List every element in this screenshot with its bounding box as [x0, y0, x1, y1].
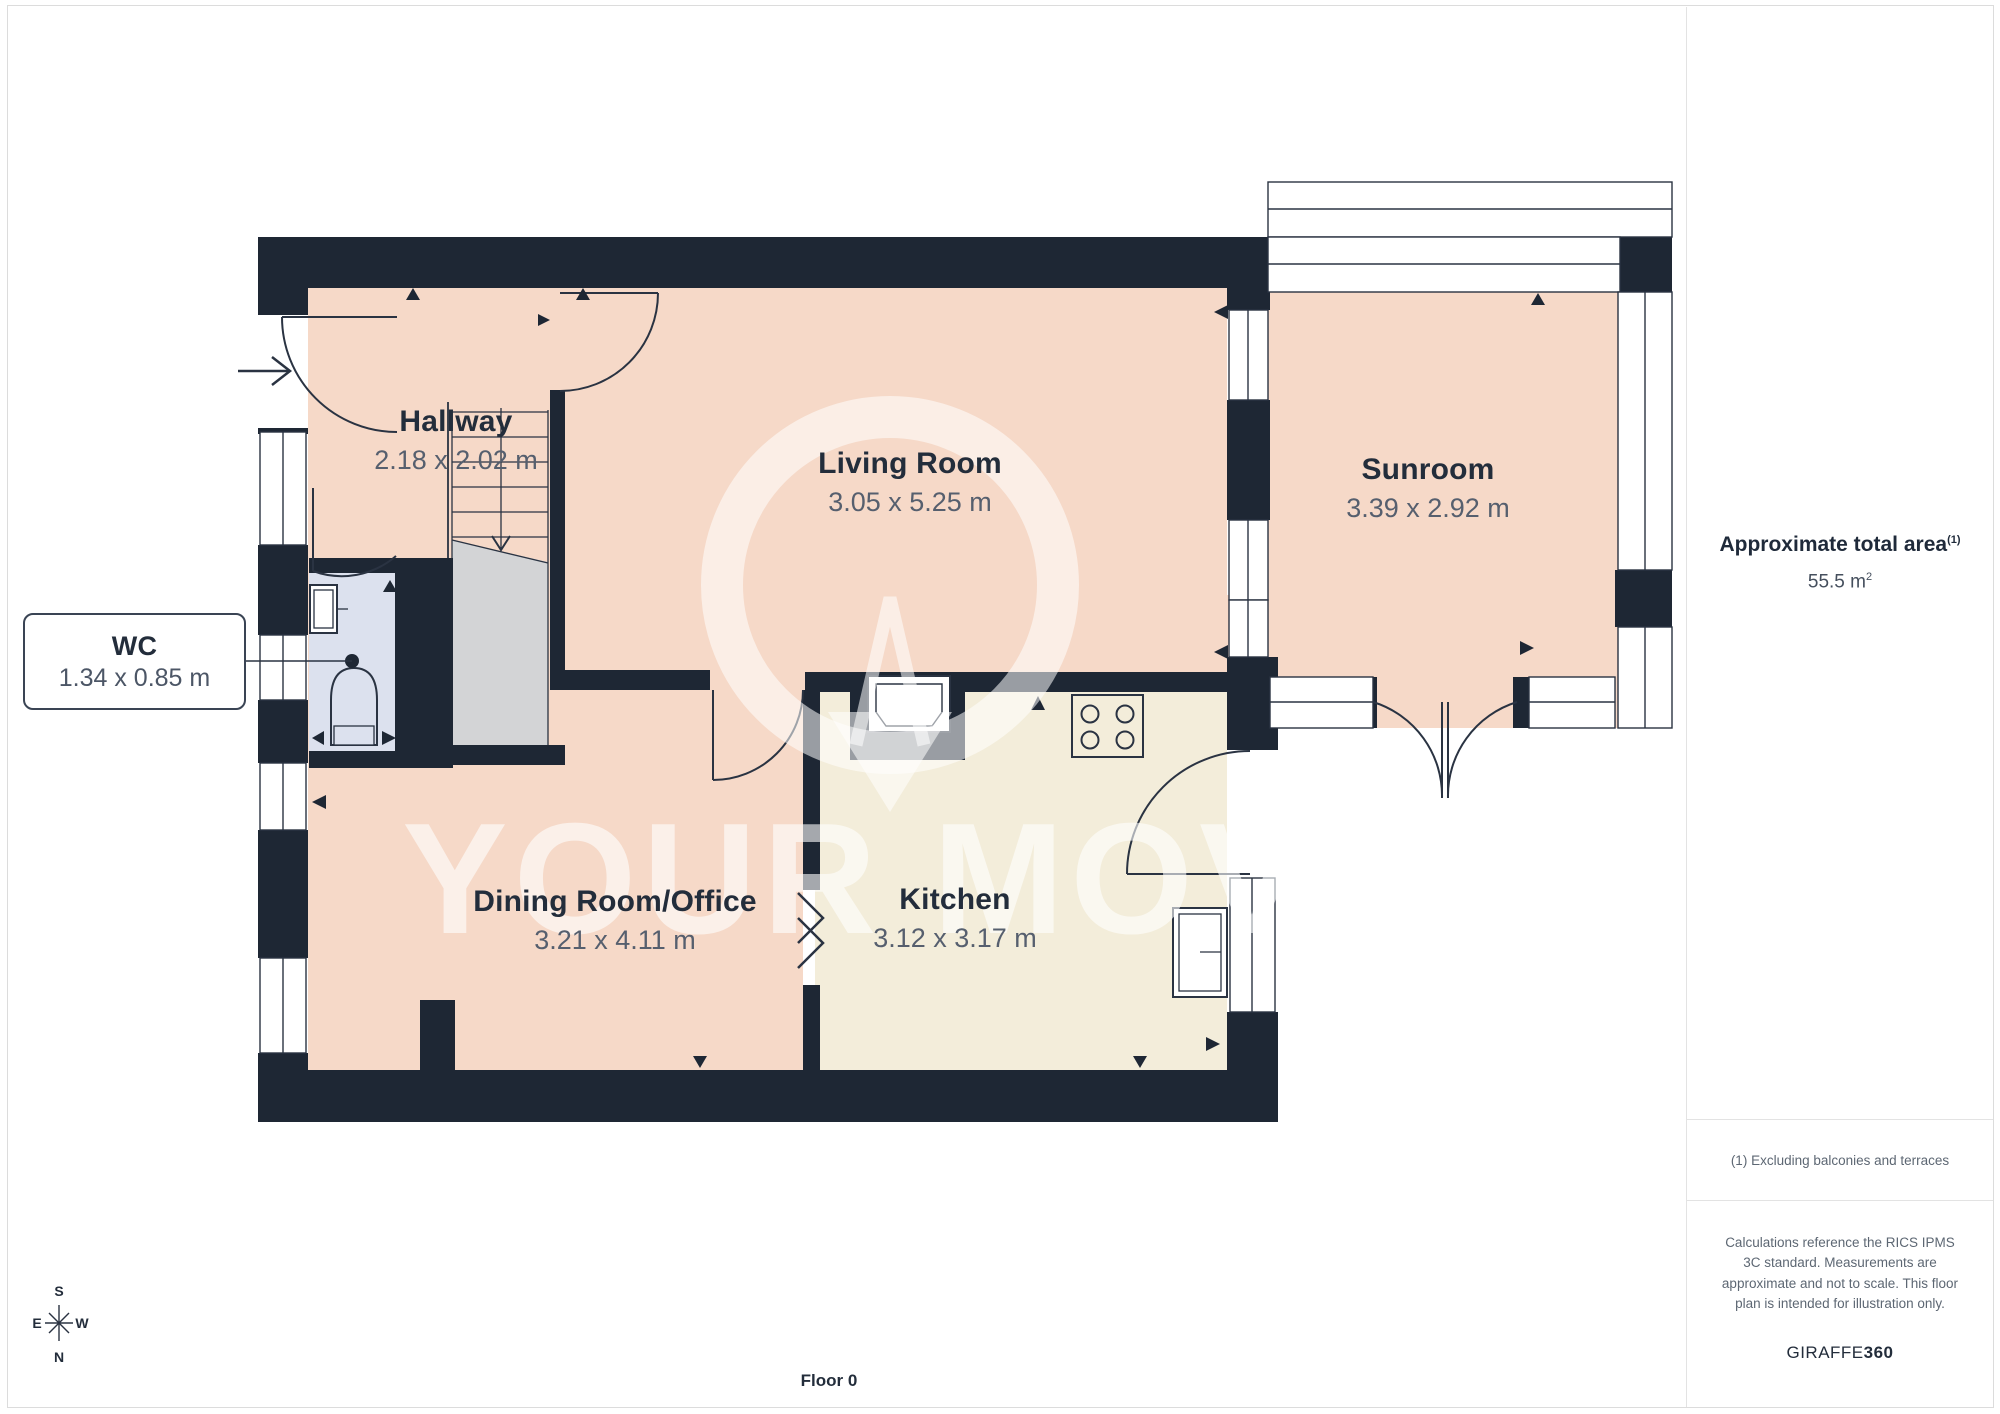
brand-text-bold: 360	[1864, 1343, 1894, 1362]
area-value-sup: 2	[1866, 571, 1872, 583]
room-dims: 2.18 x 2.02 m	[374, 444, 538, 476]
stove-icon	[1072, 695, 1143, 757]
room-name: Dining Room/Office	[473, 884, 757, 920]
area-title: Approximate total area(1)	[1719, 533, 1960, 557]
disclaimer-text: Calculations reference the RICS IPMS 3C …	[1721, 1233, 1959, 1314]
sidebar-footnote: (1) Excluding balconies and terraces	[1687, 1120, 1993, 1201]
floor-label: Floor 0	[801, 1371, 858, 1391]
room-name: Kitchen	[873, 882, 1037, 918]
compass-icon	[45, 1305, 73, 1341]
area-value: 55.5 m2	[1808, 571, 1872, 593]
room-dims: 3.05 x 5.25 m	[818, 486, 1002, 518]
area-value-text: 55.5 m	[1808, 571, 1866, 592]
room-name: Living Room	[818, 446, 1002, 482]
room-dims: 3.21 x 4.11 m	[473, 924, 757, 956]
area-title-text: Approximate total area	[1719, 533, 1947, 556]
entry-arrow-icon	[238, 357, 290, 385]
room-name: Sunroom	[1346, 452, 1510, 488]
sidebar-area-section: Approximate total area(1) 55.5 m2	[1687, 7, 1993, 1120]
room-dims: 3.39 x 2.92 m	[1346, 492, 1510, 524]
brand-text: GIRAFFE	[1786, 1343, 1863, 1362]
room-label-hallway: Hallway 2.18 x 2.02 m	[374, 404, 538, 476]
sidebar-disclaimer: Calculations reference the RICS IPMS 3C …	[1687, 1201, 1993, 1366]
compass-n: N	[54, 1349, 64, 1365]
room-label-dining: Dining Room/Office 3.21 x 4.11 m	[473, 884, 757, 956]
compass-e: E	[32, 1315, 41, 1331]
room-dims: 1.34 x 0.85 m	[59, 664, 210, 692]
brand-logo: GIRAFFE360	[1687, 1340, 1993, 1366]
floorplan-page: YOUR MOVE Hallway 2.18 x 2.02 m Living R…	[0, 0, 2000, 1414]
sidebar: Approximate total area(1) 55.5 m2 (1) Ex…	[1686, 7, 1993, 1407]
room-label-sunroom: Sunroom 3.39 x 2.92 m	[1346, 452, 1510, 524]
area-title-sup: (1)	[1947, 534, 1960, 546]
compass-w: W	[75, 1315, 88, 1331]
compass-s: S	[54, 1283, 63, 1299]
room-label-living: Living Room 3.05 x 5.25 m	[818, 446, 1002, 518]
room-name: Hallway	[374, 404, 538, 440]
room-dims: 3.12 x 3.17 m	[873, 922, 1037, 954]
room-name: WC	[112, 631, 157, 661]
room-label-wc-callout: WC 1.34 x 0.85 m	[23, 613, 246, 710]
room-label-kitchen: Kitchen 3.12 x 3.17 m	[873, 882, 1037, 954]
